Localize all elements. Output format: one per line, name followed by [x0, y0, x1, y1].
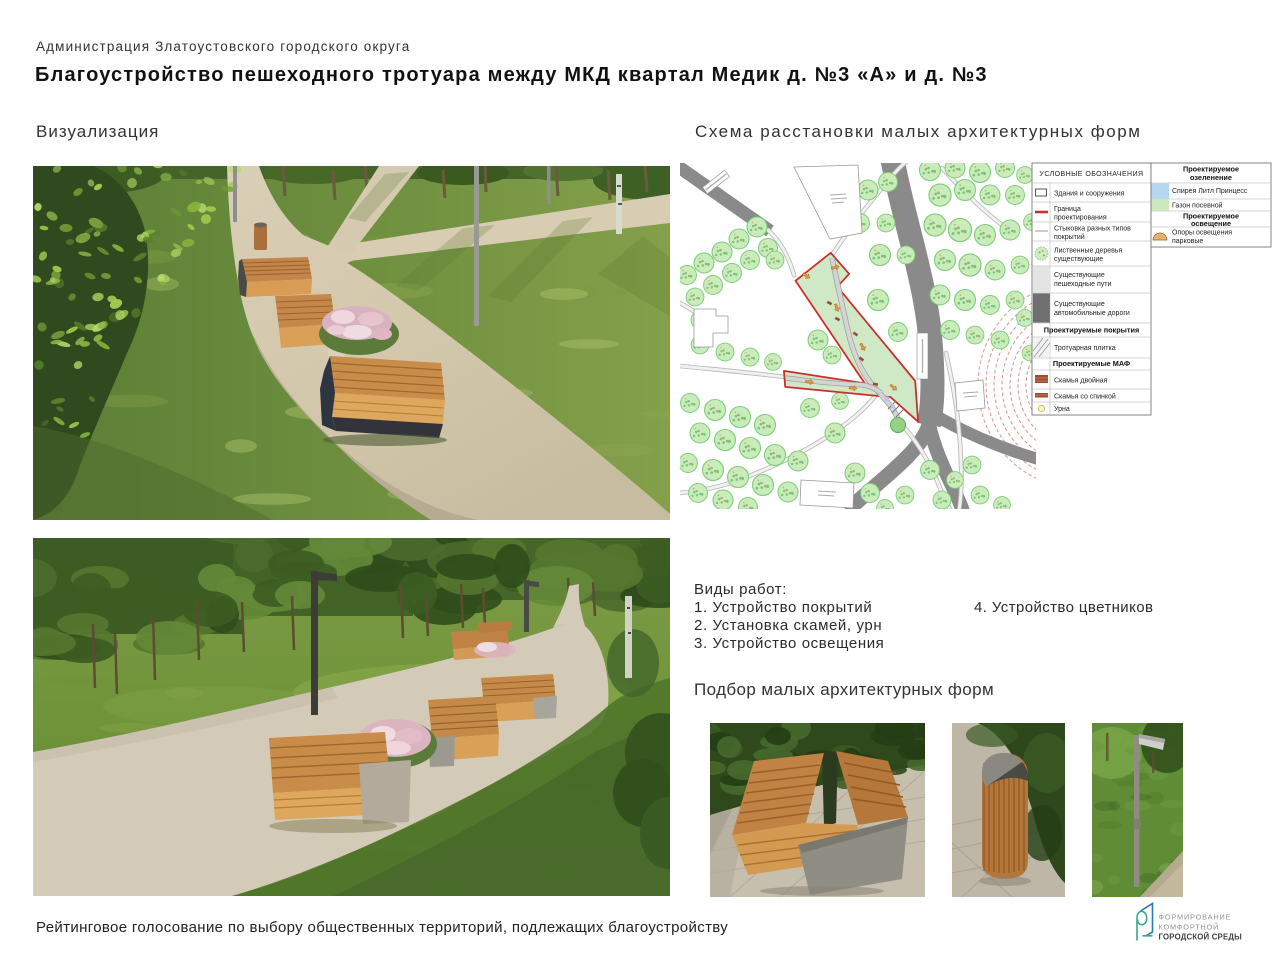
svg-text:Урна: Урна	[1054, 406, 1070, 413]
svg-text:Существующие: Существующие	[1054, 272, 1105, 279]
svg-text:УСЛОВНЫЕ ОБОЗНАЧЕНИЯ: УСЛОВНЫЕ ОБОЗНАЧЕНИЯ	[1039, 171, 1143, 178]
svg-text:покрытий: покрытий	[1054, 233, 1085, 241]
svg-text:освещение: освещение	[1191, 219, 1231, 228]
svg-text:Проектируемые покрытия: Проектируемые покрытия	[1044, 326, 1139, 335]
svg-text:Газон посевной: Газон посевной	[1172, 202, 1223, 210]
svg-text:ГОРОДСКОЙ СРЕДЫ: ГОРОДСКОЙ СРЕДЫ	[1159, 933, 1243, 942]
svg-text:Стыковка разных типов: Стыковка разных типов	[1054, 226, 1131, 233]
svg-text:Скамья двойная: Скамья двойная	[1054, 377, 1108, 385]
svg-text:ФОРМИРОВАНИЕ: ФОРМИРОВАНИЕ	[1159, 913, 1232, 922]
svg-text:существующие: существующие	[1054, 256, 1103, 263]
svg-text:пешеходные пути: пешеходные пути	[1054, 281, 1112, 288]
svg-text:парковые: парковые	[1172, 238, 1203, 245]
svg-text:Тротуарная плитка: Тротуарная плитка	[1054, 345, 1116, 352]
svg-text:Лиственные деревья: Лиственные деревья	[1054, 248, 1122, 255]
svg-text:Проектируемые МАФ: Проектируемые МАФ	[1053, 359, 1130, 368]
svg-text:Опоры освещения: Опоры освещения	[1172, 230, 1232, 237]
svg-text:Существующие: Существующие	[1054, 301, 1105, 308]
svg-text:автомобильные дороги: автомобильные дороги	[1054, 309, 1130, 317]
svg-text:Здания и сооружения: Здания и сооружения	[1054, 191, 1125, 198]
svg-text:Скамья со спинкой: Скамья со спинкой	[1054, 393, 1116, 401]
svg-text:Спирея Литл Принцесс: Спирея Литл Принцесс	[1172, 188, 1248, 195]
svg-text:проектирования: проектирования	[1054, 215, 1107, 222]
svg-text:Граница: Граница	[1054, 206, 1081, 213]
svg-text:КОМФОРТНОЙ: КОМФОРТНОЙ	[1159, 923, 1220, 932]
svg-text:озеленение: озеленение	[1190, 173, 1232, 182]
